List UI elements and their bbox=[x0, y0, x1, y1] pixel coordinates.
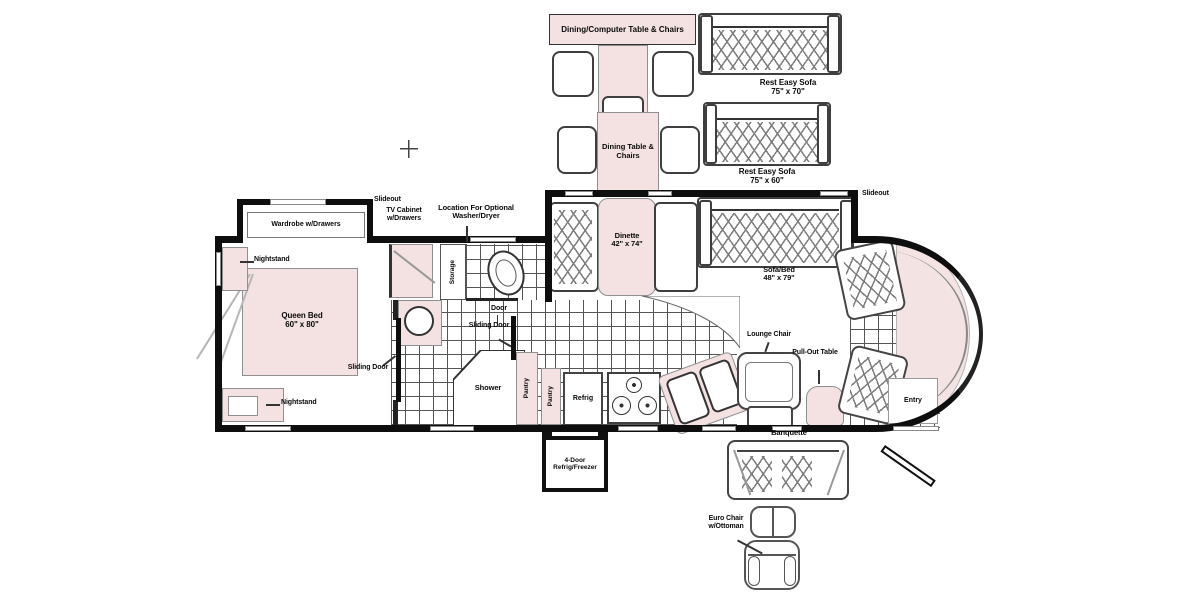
sofa-arm bbox=[705, 104, 717, 164]
wall-stub bbox=[393, 400, 398, 425]
window bbox=[216, 252, 221, 286]
window bbox=[470, 237, 516, 242]
toilet-room-wall bbox=[466, 298, 518, 301]
euro-chair-arm bbox=[748, 556, 760, 586]
nightstand-drawer bbox=[228, 396, 258, 416]
door-label: Door bbox=[482, 305, 516, 313]
window bbox=[618, 426, 658, 431]
register-mark bbox=[400, 140, 418, 158]
lounge-chair-label: Lounge Chair bbox=[736, 331, 802, 339]
rest-easy-sofa-upper-label: Rest Easy Sofa 75" x 70" bbox=[733, 79, 843, 97]
sofa-cushion-hatch bbox=[717, 122, 817, 162]
sofa-arm bbox=[700, 15, 713, 73]
dinette-label: Dinette 42" x 74" bbox=[600, 232, 654, 249]
nightstand-bottom-label: Nightstand bbox=[281, 399, 331, 407]
tv-cabinet-label: TV Cabinet w/Drawers bbox=[379, 207, 429, 223]
storage-cabinet: Storage bbox=[440, 244, 466, 300]
pantry-right-label: Pantry bbox=[547, 386, 554, 406]
pantry-left: Pantry bbox=[516, 352, 538, 425]
wardrobe: Wardrobe w/Drawers bbox=[247, 212, 365, 238]
dinette-bench bbox=[654, 202, 698, 292]
leader-line bbox=[266, 404, 280, 406]
rest-easy-sofa-lower-label: Rest Easy Sofa 75" x 60" bbox=[715, 168, 819, 186]
sofa-bed-size: 48" x 79" bbox=[733, 274, 825, 282]
window bbox=[270, 199, 326, 205]
window bbox=[245, 426, 291, 431]
window bbox=[565, 191, 593, 196]
bed-size: 60" x 80" bbox=[262, 321, 342, 330]
entry-threshold bbox=[893, 426, 939, 431]
pantry-left-label: Pantry bbox=[523, 378, 530, 398]
window bbox=[430, 426, 474, 431]
refrigerator: Refrig bbox=[563, 372, 603, 426]
dining-table-chairs: Dining Table & Chairs bbox=[597, 112, 659, 192]
four-door-refrig-option: 4-Door Refrig/Freezer bbox=[542, 436, 608, 492]
slideout-right-label: Slideout bbox=[862, 190, 908, 198]
rv-floorplan-diagram: Dining/Computer Table & Chairs Dining Ta… bbox=[0, 0, 1200, 600]
dinette-bench-hatch bbox=[554, 210, 592, 284]
leader-line bbox=[818, 370, 820, 384]
slideout-left-label: Slideout bbox=[374, 196, 418, 204]
dining-chair bbox=[557, 126, 597, 174]
sofa-cushion-hatch bbox=[712, 213, 839, 263]
sofa-cushion-hatch bbox=[713, 30, 827, 70]
banquette-hatch bbox=[782, 456, 812, 492]
bath-sink bbox=[404, 306, 434, 336]
window bbox=[820, 191, 848, 196]
sofa-arm bbox=[817, 104, 829, 164]
pull-out-table-label: Pull-Out Table bbox=[786, 349, 844, 357]
lounge-chair-seat bbox=[745, 362, 793, 402]
dining-chair bbox=[552, 51, 594, 97]
euro-chair-arm bbox=[784, 556, 796, 586]
dining-computer-table-label-box: Dining/Computer Table & Chairs bbox=[549, 14, 696, 45]
carpet-curve-edge bbox=[642, 296, 740, 348]
wall-stub bbox=[393, 300, 398, 320]
queen-bed-label: Queen Bed 60" x 80" bbox=[262, 312, 342, 330]
sofa-arm bbox=[827, 15, 840, 73]
window bbox=[648, 191, 672, 196]
euro-ottoman-line bbox=[772, 508, 774, 536]
bedroom-sliding-door-label: Sliding Door bbox=[344, 364, 392, 372]
cabinet-tab bbox=[598, 432, 608, 440]
front-cap-wall bbox=[851, 236, 983, 432]
burner bbox=[612, 396, 631, 415]
dining-chair bbox=[652, 51, 694, 97]
sofa-size: 75" x 60" bbox=[715, 177, 819, 186]
dinette-size: 42" x 74" bbox=[600, 240, 654, 248]
leader-line bbox=[466, 226, 468, 242]
bath-sliding-door-label: Sliding Door bbox=[466, 322, 512, 330]
sofa-arm bbox=[699, 200, 712, 266]
leader-line bbox=[240, 261, 254, 263]
burner bbox=[638, 396, 657, 415]
nightstand-top bbox=[222, 247, 248, 291]
pantry-right: Pantry bbox=[541, 368, 561, 425]
banquette-label: Banquette bbox=[748, 429, 830, 437]
leader-line bbox=[764, 342, 769, 352]
window bbox=[702, 426, 736, 431]
sofa-back-line bbox=[717, 118, 817, 120]
burner bbox=[626, 377, 642, 393]
banquette-back-line bbox=[737, 450, 839, 452]
living-slideout-left-wall bbox=[545, 190, 552, 302]
shower-label: Shower bbox=[460, 384, 516, 392]
euro-chair-back-line bbox=[748, 554, 796, 556]
euro-chair-label: Euro Chair w/Ottoman bbox=[700, 515, 752, 531]
sofa-back-line bbox=[712, 209, 839, 211]
washer-dryer-label: Location For Optional Washer/Dryer bbox=[428, 204, 524, 221]
sofa-size: 75" x 70" bbox=[733, 88, 843, 97]
cabinet-tab bbox=[542, 432, 552, 440]
storage-label: Storage bbox=[449, 260, 456, 284]
nightstand-top-label: Nightstand bbox=[254, 256, 304, 264]
entry-door-open bbox=[880, 445, 935, 487]
dining-chair bbox=[660, 126, 700, 174]
sofa-back-line bbox=[713, 26, 827, 28]
bedroom-sliding-door bbox=[396, 318, 401, 402]
sofa-bed-label: Sofa/Bed 48" x 79" bbox=[733, 266, 825, 283]
